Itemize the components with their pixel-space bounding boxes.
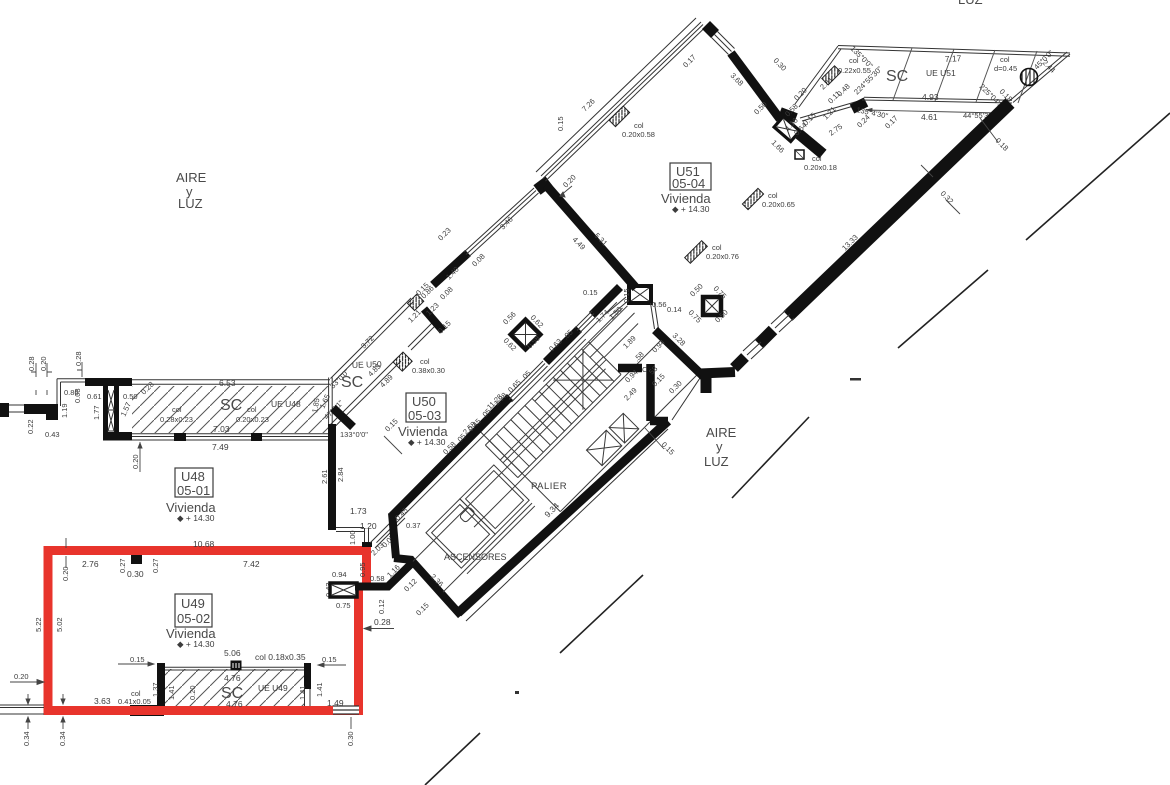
svg-text:1.77: 1.77 [92,405,101,420]
svg-text:0.27: 0.27 [118,558,127,573]
svg-text:U49: U49 [181,596,205,611]
svg-text:0.28: 0.28 [374,617,391,627]
svg-text:1.49: 1.49 [327,698,344,708]
svg-text:1.37: 1.37 [151,682,160,697]
svg-text:0.94: 0.94 [332,570,347,579]
svg-text:3.63: 3.63 [94,696,111,706]
svg-text:0.20x0.58: 0.20x0.58 [622,130,655,139]
svg-text:U50: U50 [412,394,436,409]
svg-text:6.53: 6.53 [219,378,236,388]
svg-text:10.68: 10.68 [193,539,215,549]
svg-text:1.00: 1.00 [348,530,357,545]
svg-text:col: col [768,191,778,200]
svg-text:5.02: 5.02 [55,617,64,632]
svg-text:0.15: 0.15 [622,288,631,303]
svg-text:4.61: 4.61 [921,112,938,122]
svg-text:0.20x0.18: 0.20x0.18 [804,163,837,172]
svg-text:0.22: 0.22 [26,419,35,434]
svg-text:UE U51: UE U51 [926,68,956,78]
svg-text:SC: SC [220,397,242,414]
svg-text:0.28x0.23: 0.28x0.23 [160,415,193,424]
svg-text:LUZ: LUZ [704,454,729,469]
svg-text:0.58: 0.58 [370,574,385,583]
svg-text:4.76: 4.76 [224,673,241,683]
svg-text:0.75: 0.75 [336,601,351,610]
svg-text:7.49: 7.49 [212,442,229,452]
svg-text:UE U48: UE U48 [271,399,301,409]
svg-text:LUZ: LUZ [958,0,983,7]
svg-text:0.20x0.76: 0.20x0.76 [706,252,739,261]
svg-text:1.41: 1.41 [167,685,176,700]
svg-text:0.20: 0.20 [188,685,197,700]
svg-text:0.37: 0.37 [406,521,421,530]
svg-text:4.93: 4.93 [922,92,939,102]
svg-text:7.03: 7.03 [213,424,230,434]
svg-text:4.76: 4.76 [226,699,243,709]
svg-text:◆ + 14.30: ◆ + 14.30 [177,639,215,649]
svg-text:0.15: 0.15 [556,116,565,131]
svg-text:05-03: 05-03 [408,408,441,423]
svg-text:y: y [716,439,723,454]
svg-text:0.20: 0.20 [131,454,140,469]
svg-text:UE U49: UE U49 [258,683,288,693]
svg-text:7.42: 7.42 [243,559,260,569]
svg-text:0.20x0.65: 0.20x0.65 [762,200,795,209]
svg-text:1.73: 1.73 [350,506,367,516]
svg-text:7.17: 7.17 [945,53,962,64]
svg-text:05-02: 05-02 [177,611,210,626]
svg-text:0.15: 0.15 [583,288,598,297]
svg-text:05-04: 05-04 [672,176,705,191]
svg-text:0.61: 0.61 [87,392,102,401]
svg-text:PALIER: PALIER [531,481,567,492]
svg-text:SC: SC [886,68,908,85]
svg-text:2.76: 2.76 [82,559,99,569]
svg-text:0.34: 0.34 [58,731,67,746]
svg-text:◆ + 14.30: ◆ + 14.30 [672,204,710,214]
svg-text:0.50: 0.50 [123,392,138,401]
svg-text:05-01: 05-01 [177,483,210,498]
svg-text:133°0'0": 133°0'0" [340,430,368,439]
svg-text:0.41x0.05: 0.41x0.05 [118,697,151,706]
svg-text:0.27: 0.27 [151,558,160,573]
svg-text:d=0.45: d=0.45 [994,64,1017,73]
svg-text:1.20: 1.20 [360,521,377,531]
svg-text:AIRE: AIRE [176,170,207,185]
svg-text:◆ + 14.30: ◆ + 14.30 [177,513,215,523]
svg-text:0.20: 0.20 [61,566,70,581]
svg-text:0.12: 0.12 [377,599,386,614]
svg-text:0.43: 0.43 [45,430,60,439]
svg-text:0.30: 0.30 [127,569,144,579]
svg-text:LUZ: LUZ [178,196,203,211]
svg-text:col: col [247,405,257,414]
svg-text:0.95: 0.95 [358,562,367,577]
svg-text:0.08: 0.08 [73,388,82,403]
svg-text:0.15: 0.15 [130,655,145,664]
svg-text:0.20: 0.20 [14,672,29,681]
svg-text:col 0.18x0.35: col 0.18x0.35 [255,652,306,662]
svg-text:5.06: 5.06 [224,648,241,658]
svg-text:5.22: 5.22 [34,617,43,632]
svg-text:0.20x0.23: 0.20x0.23 [236,415,269,424]
svg-text:0.38x0.30: 0.38x0.30 [412,366,445,375]
svg-text:0.56: 0.56 [652,300,667,309]
svg-text:2.61: 2.61 [320,469,329,484]
svg-text:◆ + 14.30: ◆ + 14.30 [408,437,446,447]
svg-text:0.28: 0.28 [27,356,36,371]
svg-text:col: col [172,405,182,414]
svg-text:U48: U48 [181,469,205,484]
svg-text:0.34: 0.34 [22,731,31,746]
svg-text:SC: SC [341,374,363,391]
svg-text:0.30: 0.30 [346,731,355,746]
svg-text:col: col [812,154,822,163]
svg-text:ASCENSORES: ASCENSORES [444,552,507,562]
svg-text:AIRE: AIRE [706,425,737,440]
svg-text:col: col [712,243,722,252]
svg-text:1.19: 1.19 [60,403,69,418]
svg-text:2.84: 2.84 [336,467,345,482]
svg-text:0.14: 0.14 [667,305,682,314]
svg-text:col: col [420,357,430,366]
svg-text:1.41: 1.41 [315,682,324,697]
svg-text:col: col [1000,55,1010,64]
svg-text:1.41: 1.41 [298,685,307,700]
svg-text:col: col [634,121,644,130]
